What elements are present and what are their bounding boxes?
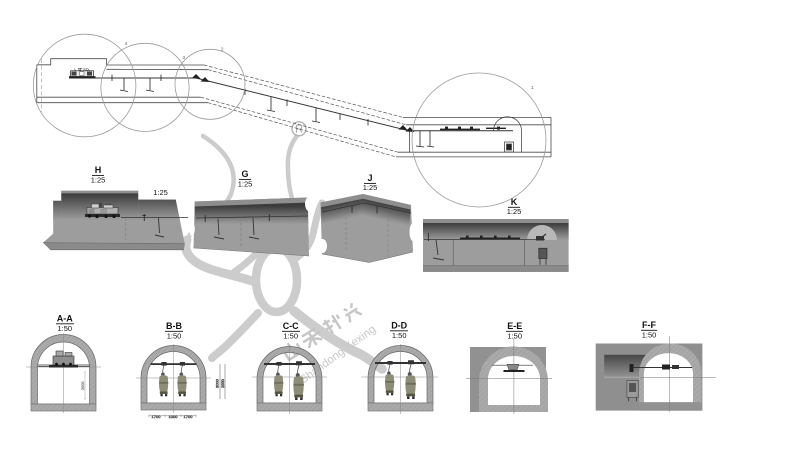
svg-text:C-C: C-C <box>283 321 299 331</box>
svg-text:1700: 1700 <box>184 414 194 419</box>
svg-text:G: G <box>241 169 248 179</box>
svg-text:B-B: B-B <box>166 321 182 331</box>
svg-text:1:50: 1:50 <box>642 331 657 340</box>
svg-text:1:50: 1:50 <box>167 332 182 341</box>
svg-text:1:50: 1:50 <box>392 331 407 340</box>
svg-text:2000: 2000 <box>81 382 85 390</box>
svg-text:D-D: D-D <box>391 321 407 331</box>
svg-text:1000: 1000 <box>169 414 179 419</box>
svg-text:1:25: 1:25 <box>91 176 106 185</box>
svg-text:1:50: 1:50 <box>507 332 522 341</box>
svg-text:E-E: E-E <box>507 321 522 331</box>
svg-text:1:25: 1:25 <box>363 183 378 192</box>
svg-text:2550: 2550 <box>220 378 225 388</box>
svg-text:J: J <box>367 173 372 183</box>
svg-text:1:50: 1:50 <box>57 324 72 333</box>
svg-text:H: H <box>95 165 102 175</box>
svg-text:A-A: A-A <box>57 314 73 324</box>
svg-text:1:25: 1:25 <box>238 180 253 189</box>
svg-text:3000: 3000 <box>215 378 220 388</box>
svg-text:1:25: 1:25 <box>153 188 168 197</box>
svg-text:K: K <box>511 197 518 207</box>
svg-text:1:25: 1:25 <box>507 207 522 216</box>
svg-text:F-F: F-F <box>642 320 656 330</box>
svg-text:1:50: 1:50 <box>283 332 298 341</box>
svg-text:1700: 1700 <box>152 414 162 419</box>
svg-text:KC: KC <box>84 68 89 72</box>
